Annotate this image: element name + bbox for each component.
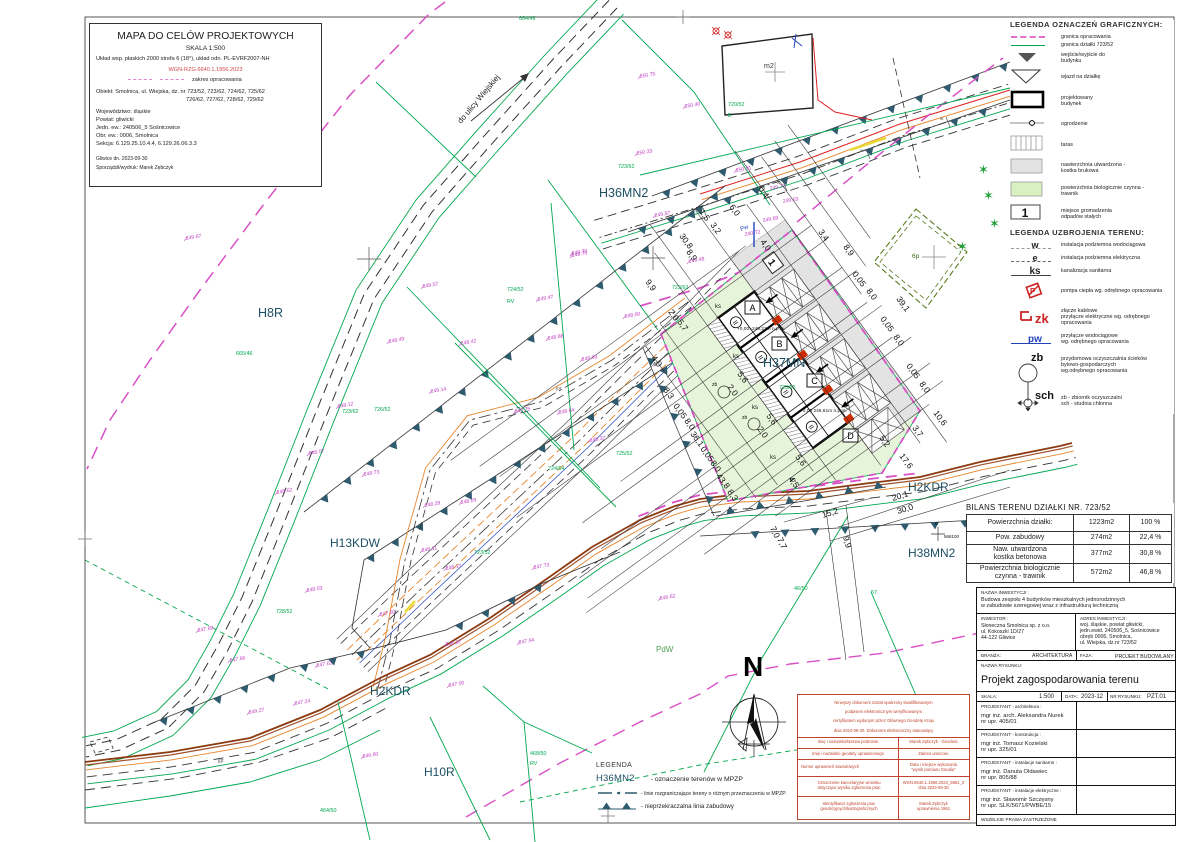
- svg-text:720/52: 720/52: [728, 102, 745, 108]
- svg-text:zb: zb: [712, 382, 718, 388]
- svg-text:248.62: 248.62: [276, 487, 293, 496]
- svg-text:249.27: 249.27: [248, 707, 265, 716]
- svg-text:17,6: 17,6: [897, 451, 915, 470]
- svg-text:B: B: [728, 113, 732, 119]
- svg-text:725/52: 725/52: [616, 451, 633, 457]
- svg-text:+0,00 248,61m n.p.m.: +0,00 248,61m n.p.m.: [800, 408, 847, 414]
- svg-text:3,2: 3,2: [708, 220, 723, 236]
- svg-text:568100: 568100: [944, 534, 960, 539]
- svg-text:248.88: 248.88: [547, 333, 564, 342]
- svg-text:zb: zb: [1031, 352, 1044, 364]
- svg-text:247.69: 247.69: [197, 625, 214, 634]
- svg-text:247.66: 247.66: [229, 655, 246, 664]
- svg-text:7,7: 7,7: [775, 536, 789, 551]
- svg-text:248.73: 248.73: [363, 469, 380, 478]
- svg-text:46/50: 46/50: [794, 586, 808, 592]
- svg-text:249.72: 249.72: [769, 183, 786, 192]
- svg-text:H13KDW: H13KDW: [330, 536, 381, 550]
- svg-text:664/46: 664/46: [519, 16, 536, 22]
- svg-text:3,4: 3,4: [816, 227, 831, 243]
- svg-text:9,9: 9,9: [841, 535, 854, 549]
- svg-text:9,9: 9,9: [643, 277, 658, 293]
- svg-text:724/52: 724/52: [507, 287, 524, 293]
- svg-text:zb: zb: [742, 415, 748, 421]
- svg-text:H37MN: H37MN: [763, 356, 805, 370]
- svg-text:723/62: 723/62: [618, 164, 635, 170]
- svg-text:248.00: 248.00: [624, 311, 641, 320]
- svg-text:✶: ✶: [957, 239, 968, 254]
- svg-text:249.69: 249.69: [762, 215, 779, 224]
- svg-text:247.00: 247.00: [448, 680, 465, 689]
- svg-text:H36MN2: H36MN2: [599, 186, 648, 200]
- svg-text:ks: ks: [733, 354, 739, 360]
- svg-text:8,9: 8,9: [841, 242, 856, 258]
- svg-text:PdW: PdW: [656, 645, 674, 654]
- svg-text:665/46: 665/46: [236, 351, 253, 357]
- svg-text:ks: ks: [715, 304, 721, 310]
- svg-text:249.47: 249.47: [537, 294, 554, 303]
- svg-text:726/52: 726/52: [374, 407, 391, 413]
- svg-text:0,05: 0,05: [904, 361, 922, 380]
- svg-text:0,05: 0,05: [878, 314, 896, 333]
- svg-text:247.60: 247.60: [379, 609, 396, 618]
- svg-text:250.75: 250.75: [639, 71, 656, 80]
- svg-text:0,05: 0,05: [850, 269, 868, 288]
- svg-text:57: 57: [871, 590, 877, 596]
- svg-text:RV: RV: [530, 761, 538, 767]
- svg-text:N: N: [743, 651, 763, 682]
- svg-text:P: P: [1030, 287, 1036, 296]
- svg-text:247.73: 247.73: [533, 562, 550, 571]
- svg-text:246.60: 246.60: [362, 751, 379, 760]
- svg-text:248.17: 248.17: [445, 563, 462, 572]
- svg-text:B: B: [776, 339, 782, 349]
- svg-text:m2: m2: [764, 63, 774, 70]
- svg-text:248.29: 248.29: [424, 500, 441, 509]
- svg-text:jor.: jor.: [555, 386, 563, 392]
- svg-text:39,1: 39,1: [894, 294, 912, 313]
- svg-text:ks: ks: [752, 405, 758, 411]
- svg-text:8,0: 8,0: [917, 379, 932, 395]
- svg-text:+0,00=249,22m n.p.m.: +0,00=249,22m n.p.m.: [737, 326, 785, 332]
- svg-text:250.40: 250.40: [684, 101, 701, 110]
- svg-text:H2KDR: H2KDR: [370, 684, 411, 698]
- svg-text:248.64: 248.64: [558, 407, 575, 416]
- svg-text:✶: ✶: [983, 188, 994, 203]
- svg-text:H8R: H8R: [258, 306, 283, 320]
- svg-text:728/52: 728/52: [276, 609, 293, 615]
- svg-text:8,0: 8,0: [891, 332, 906, 348]
- svg-text:248.93: 248.93: [581, 354, 598, 363]
- svg-text:250.33: 250.33: [636, 148, 653, 157]
- svg-text:246.62: 246.62: [659, 593, 676, 602]
- svg-text:248.11: 248.11: [421, 545, 437, 554]
- svg-text:247.94: 247.94: [518, 637, 535, 646]
- svg-text:249.63: 249.63: [782, 196, 799, 205]
- svg-text:✶: ✶: [978, 162, 989, 177]
- svg-text:ks: ks: [790, 478, 796, 484]
- svg-text:250.01: 250.01: [735, 165, 752, 174]
- svg-text:4,0: 4,0: [649, 353, 664, 369]
- svg-text:zk: zk: [1035, 311, 1050, 326]
- svg-text:ks: ks: [770, 455, 776, 461]
- svg-text:A: A: [749, 303, 755, 313]
- svg-text:723/52: 723/52: [779, 385, 796, 391]
- svg-text:247.24: 247.24: [294, 698, 311, 707]
- svg-text:15,2: 15,2: [821, 505, 840, 519]
- svg-text:249.14: 249.14: [430, 386, 447, 395]
- svg-text:3,7: 3,7: [910, 423, 925, 439]
- svg-text:6p: 6p: [912, 253, 920, 260]
- svg-text:723/52: 723/52: [474, 550, 491, 556]
- svg-text:248.03: 248.03: [306, 585, 323, 594]
- svg-text:do ulicy Wiejskiej: do ulicy Wiejskiej: [456, 73, 502, 126]
- svg-text:248.42: 248.42: [460, 338, 477, 347]
- svg-text:724/64: 724/64: [548, 466, 565, 472]
- svg-text:248.49: 248.49: [388, 336, 405, 345]
- svg-text:468/50: 468/50: [530, 751, 547, 757]
- svg-text:H2KDR: H2KDR: [908, 480, 949, 494]
- svg-text:723/62: 723/62: [672, 285, 689, 291]
- svg-text:464/50: 464/50: [320, 808, 337, 814]
- svg-text:H10R: H10R: [424, 765, 455, 779]
- svg-text:RV: RV: [507, 299, 515, 305]
- svg-text:C: C: [811, 376, 818, 386]
- svg-text:248.07: 248.07: [308, 448, 325, 457]
- svg-text:248.09: 248.09: [460, 497, 477, 506]
- svg-text:sch: sch: [1035, 390, 1054, 402]
- svg-text:249.57: 249.57: [422, 281, 439, 290]
- svg-text:8,0: 8,0: [864, 286, 879, 302]
- svg-text:1: 1: [1022, 206, 1029, 220]
- svg-text:B: B: [935, 521, 938, 526]
- svg-text:H38MN2: H38MN2: [908, 546, 956, 560]
- svg-text:30,0: 30,0: [896, 501, 915, 515]
- svg-text:723/62: 723/62: [342, 409, 359, 415]
- svg-text:jgr.: jgr.: [217, 758, 225, 764]
- svg-text:✶: ✶: [989, 216, 1000, 231]
- svg-text:249.67: 249.67: [185, 233, 202, 242]
- svg-text:248.37: 248.37: [589, 435, 606, 444]
